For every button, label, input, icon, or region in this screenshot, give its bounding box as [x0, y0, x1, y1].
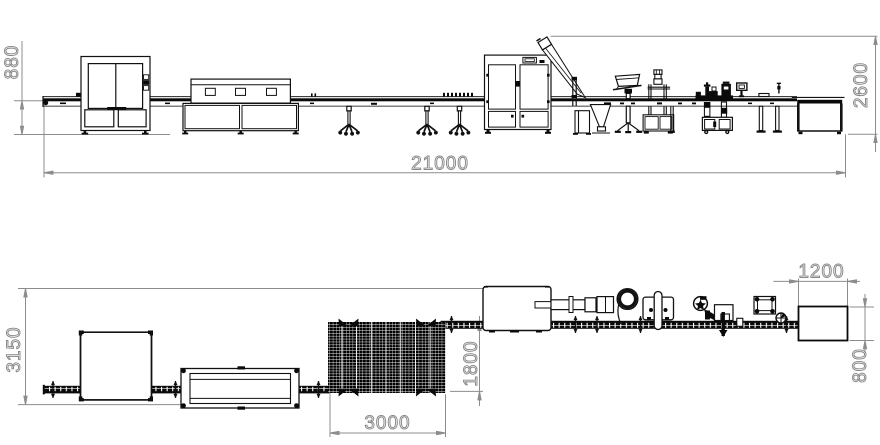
svg-text:800: 800: [850, 348, 871, 383]
svg-text:3000: 3000: [364, 413, 410, 434]
svg-text:3150: 3150: [4, 326, 25, 372]
svg-text:1800: 1800: [461, 340, 482, 386]
svg-text:1200: 1200: [798, 262, 844, 283]
svg-text:880: 880: [2, 45, 23, 80]
svg-text:2600: 2600: [851, 62, 872, 108]
svg-text:21000: 21000: [411, 154, 469, 175]
